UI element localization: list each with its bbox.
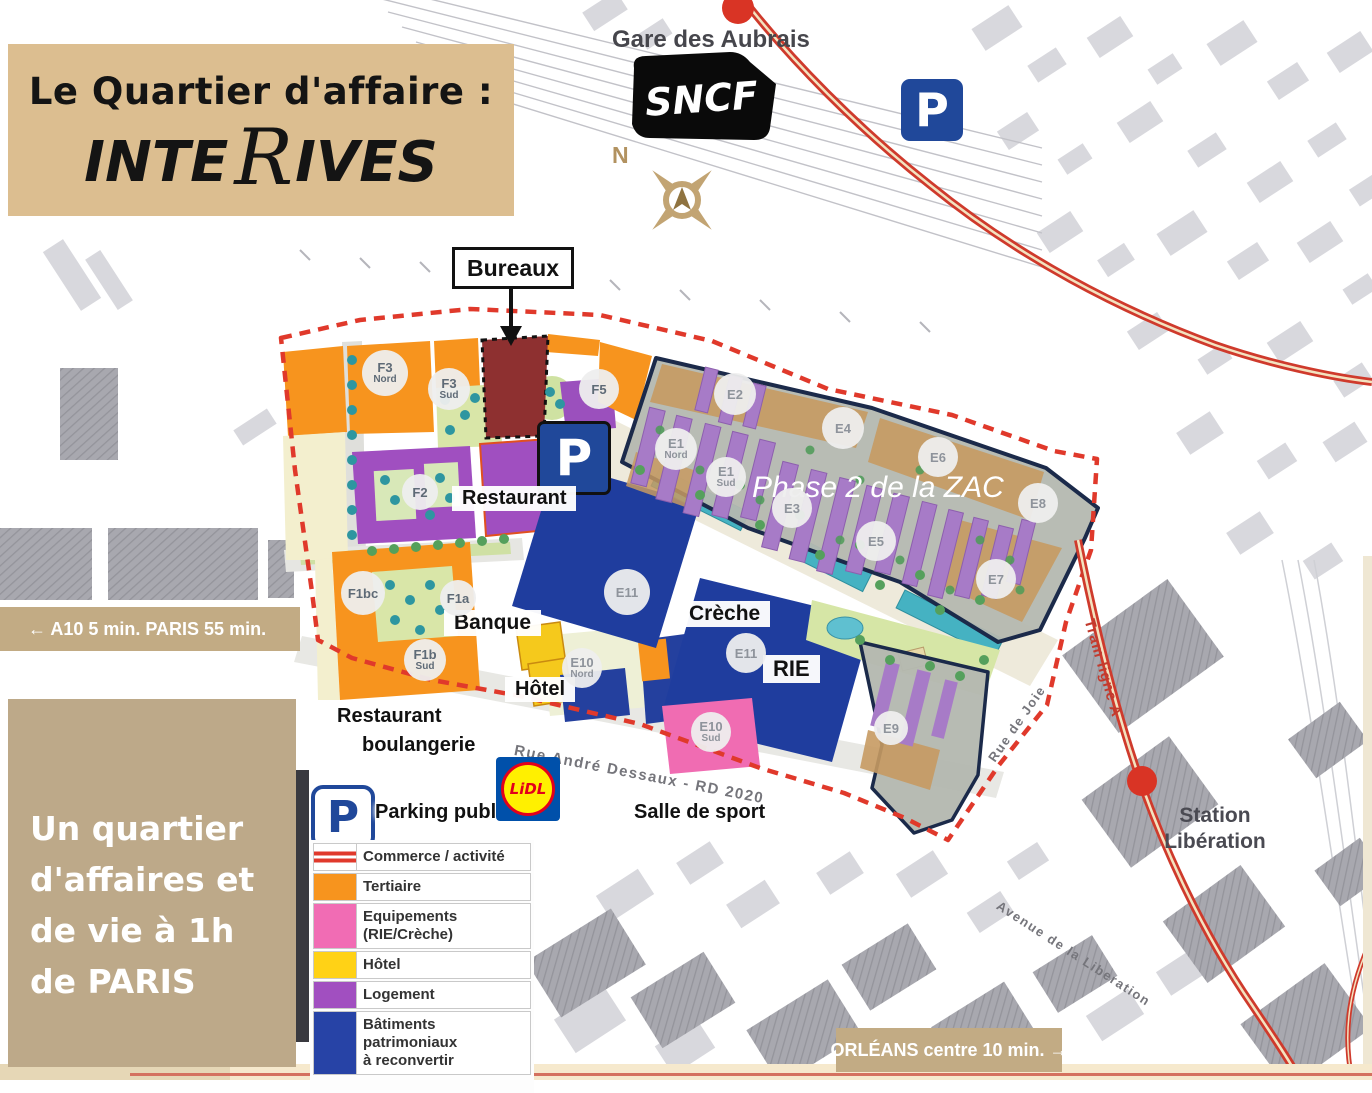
parcel-badge-f2: F2 <box>402 474 438 510</box>
restaurant-label: Restaurant <box>452 486 576 511</box>
parcel-badge-e11: E11 <box>604 569 650 615</box>
legend-row-0: Commerce / activité <box>313 843 531 871</box>
legend-swatch-1 <box>313 873 357 901</box>
parcel-badge-e11: E11 <box>726 633 766 673</box>
page-title: Le Quartier d'affaire : <box>29 70 493 113</box>
restaurant-boulangerie-line1: Restaurant <box>337 705 441 728</box>
parcel-badge-f1a: F1a <box>440 580 476 616</box>
creche-label: Crèche <box>679 601 770 627</box>
parcel-badge-f1bc: F1bc <box>341 571 385 615</box>
parking-public-label: Parking public <box>375 801 513 824</box>
parcel-badge-e1-nord: E1Nord <box>655 428 697 470</box>
parcel-badge-e9: E9 <box>874 711 908 745</box>
orleans-banner: ORLÉANS centre 10 min. → <box>836 1028 1062 1072</box>
parking-icon-north: P <box>901 79 963 141</box>
legend-swatch-5 <box>313 1011 357 1075</box>
parcel-badge-e3: E3 <box>772 488 812 528</box>
bureaux-callout: Bureaux <box>452 247 574 289</box>
parcel-badge-e5: E5 <box>856 521 896 561</box>
legend-label-5: Bâtiments patrimoniaux à reconvertir <box>357 1011 531 1075</box>
parking-icon-central: P <box>537 421 611 495</box>
legend-row-3: Hôtel <box>313 951 531 979</box>
parcel-badge-e1-sud: E1Sud <box>706 457 746 497</box>
parcel-badge-f3-sud: F3Sud <box>428 368 470 410</box>
restaurant-boulangerie-line2: boulangerie <box>362 734 475 757</box>
brand-logo: INTE R IVES <box>84 119 438 191</box>
interives-map-slide: { "header": { "title_line": "Le Quartier… <box>0 0 1372 1080</box>
legend-row-1: Tertiaire <box>313 873 531 901</box>
brand-pre: INTE <box>84 135 228 191</box>
legend-swatch-3 <box>313 951 357 979</box>
lidl-logo-disc: LiDL <box>501 762 555 816</box>
legend-row-4: Logement <box>313 981 531 1009</box>
legend-swatch-2 <box>313 903 357 949</box>
lidl-logo: LiDL <box>496 757 560 821</box>
rie-label: RIE <box>763 655 820 683</box>
tram-stop-dot-top <box>722 0 754 24</box>
tram-stop-dot-liberation <box>1127 766 1157 796</box>
legend-label-1: Tertiaire <box>357 873 531 901</box>
parcel-badge-e4: E4 <box>822 407 864 449</box>
parcel-badge-e2: E2 <box>714 373 756 415</box>
right-edge-strip <box>1363 556 1372 1080</box>
station-liberation-label: Station Libération <box>1152 803 1278 856</box>
legend-label-0: Commerce / activité <box>357 843 531 871</box>
parcel-badge-e10-sud: E10Sud <box>691 712 731 752</box>
map-legend: Commerce / activitéTertiaireEquipements … <box>310 840 534 1093</box>
compass-rose-icon <box>623 141 742 260</box>
legend-label-3: Hôtel <box>357 951 531 979</box>
parcel-badge-f3-nord: F3Nord <box>362 350 408 396</box>
parcel-badge-e10-nord: E10Nord <box>562 648 602 688</box>
hotel-label: Hôtel <box>505 677 575 702</box>
salle-de-sport-label: Salle de sport <box>634 801 765 824</box>
parcel-badge-e8: E8 <box>1018 483 1058 523</box>
title-box: Le Quartier d'affaire : INTE R IVES <box>8 44 514 216</box>
parcel-badge-f1b-sud: F1bSud <box>404 639 446 681</box>
info-box: Un quartier d'affaires et de vie à 1h de… <box>8 699 296 1067</box>
info-box-text: Un quartier d'affaires et de vie à 1h de… <box>30 803 278 1008</box>
legend-label-2: Equipements (RIE/Crèche) <box>357 903 531 949</box>
legend-row-5: Bâtiments patrimoniaux à reconvertir <box>313 1011 531 1075</box>
lidl-logo-text: LiDL <box>510 780 547 798</box>
parcel-badge-f5: F5 <box>579 369 619 409</box>
sncf-logo-text: SNCF <box>644 73 760 125</box>
parcel-badge-e7: E7 <box>976 559 1016 599</box>
brand-r: R <box>234 119 293 197</box>
brand-post: IVES <box>295 135 438 191</box>
parcel-badge-e6: E6 <box>918 437 958 477</box>
legend-label-4: Logement <box>357 981 531 1009</box>
legend-swatch-0 <box>313 843 357 871</box>
legend-swatch-4 <box>313 981 357 1009</box>
sncf-logo: SNCF <box>620 50 780 151</box>
a10-banner: ← A10 5 min. PARIS 55 min. <box>0 607 300 651</box>
road-shadow-bar <box>296 770 309 1042</box>
compass-north-label: N <box>612 142 629 169</box>
legend-row-2: Equipements (RIE/Crèche) <box>313 903 531 949</box>
